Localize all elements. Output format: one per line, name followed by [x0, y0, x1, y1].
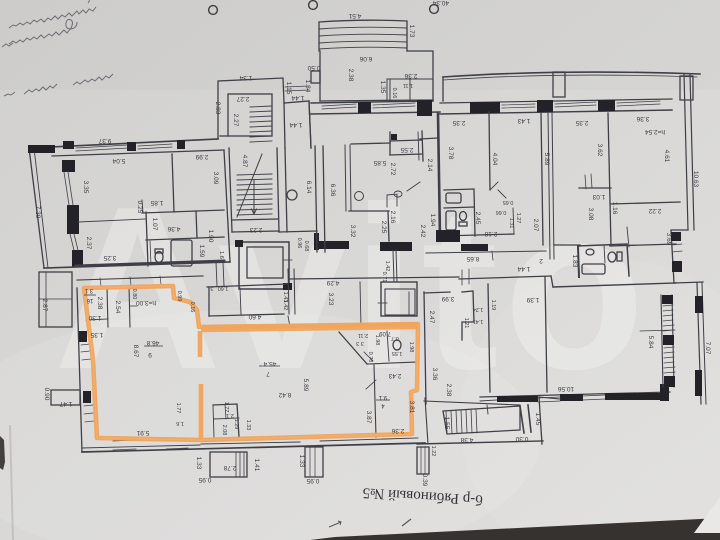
svg-text:4.36: 4.36	[167, 225, 180, 232]
svg-text:2.42: 2.42	[419, 225, 426, 238]
svg-text:8.65: 8.65	[466, 255, 479, 262]
svg-text:2.87: 2.87	[41, 299, 48, 312]
svg-text:0.7: 0.7	[391, 335, 399, 341]
svg-text:2.08: 2.08	[221, 425, 227, 436]
svg-text:8.42: 8.42	[278, 391, 291, 398]
svg-text:46.8: 46.8	[146, 339, 159, 346]
svg-text:3.36: 3.36	[431, 368, 438, 381]
svg-text:1.43: 1.43	[517, 117, 530, 124]
svg-text:1.34: 1.34	[239, 74, 252, 81]
svg-text:1.90: 1.90	[207, 230, 214, 243]
svg-text:40.34: 40.34	[432, 0, 449, 6]
svg-text:0.95: 0.95	[306, 477, 319, 484]
svg-text:1.22: 1.22	[430, 446, 436, 457]
svg-text:2.25: 2.25	[380, 221, 387, 234]
svg-text:1.83: 1.83	[571, 255, 578, 268]
svg-text:1.03: 1.03	[592, 193, 605, 200]
svg-text:0.66: 0.66	[496, 209, 507, 215]
svg-text:2.72: 2.72	[389, 163, 396, 176]
svg-text:1.41: 1.41	[253, 459, 260, 472]
svg-text:1.6: 1.6	[218, 251, 224, 259]
svg-text:2.27: 2.27	[232, 114, 239, 127]
svg-text:16: 16	[86, 297, 93, 303]
svg-text:7.07: 7.07	[704, 342, 711, 355]
svg-text:4.51: 4.51	[348, 12, 361, 19]
svg-text:3.25: 3.25	[103, 254, 116, 261]
svg-text:1.07: 1.07	[151, 218, 158, 231]
svg-text:1.35: 1.35	[379, 81, 386, 94]
svg-text:1.16: 1.16	[611, 202, 618, 215]
svg-text:1.47: 1.47	[59, 400, 72, 407]
svg-text:0.30: 0.30	[515, 435, 528, 442]
svg-text:5.85: 5.85	[373, 159, 386, 166]
svg-text:3.87: 3.87	[365, 411, 372, 424]
svg-text:3.62: 3.62	[596, 144, 603, 157]
svg-text:0.99: 0.99	[176, 291, 182, 302]
svg-text:3.23: 3.23	[327, 293, 334, 306]
svg-text:8.67: 8.67	[132, 345, 139, 358]
svg-text:h=2.54: h=2.54	[645, 128, 665, 135]
svg-text:6.14: 6.14	[305, 181, 312, 194]
svg-text:3.78: 3.78	[447, 147, 454, 160]
svg-text:7.30: 7.30	[34, 206, 41, 219]
svg-text:0.16: 0.16	[189, 302, 195, 313]
svg-text:2.16: 2.16	[389, 211, 396, 224]
svg-text:3.32: 3.32	[349, 225, 356, 238]
svg-text:0.96: 0.96	[296, 238, 302, 249]
svg-text:3 3: 3 3	[356, 340, 364, 346]
svg-text:1.44: 1.44	[517, 265, 530, 272]
svg-text:1.35: 1.35	[90, 331, 103, 338]
svg-text:1.27: 1.27	[515, 213, 521, 224]
svg-text:1.55: 1.55	[392, 350, 403, 356]
svg-text:2.1: 2.1	[226, 412, 234, 418]
svg-text:5.84: 5.84	[647, 336, 654, 349]
svg-text:0.25: 0.25	[136, 201, 143, 214]
svg-text:2.23: 2.23	[249, 226, 262, 233]
svg-text:3: 3	[210, 285, 213, 291]
svg-text:5.04: 5.04	[112, 157, 125, 164]
svg-text:2.47: 2.47	[428, 311, 435, 324]
svg-text:2.37: 2.37	[85, 237, 92, 250]
svg-text:4.60: 4.60	[248, 313, 261, 320]
svg-text:0.90: 0.90	[43, 388, 50, 401]
svg-text:2.35: 2.35	[575, 119, 588, 126]
svg-text:3.81: 3.81	[408, 401, 415, 414]
svg-text:1.21: 1.21	[463, 318, 469, 329]
svg-text:1.42: 1.42	[384, 261, 390, 272]
svg-text:2.38: 2.38	[347, 69, 354, 82]
svg-text:2.43: 2.43	[388, 372, 401, 379]
svg-text:1.34: 1.34	[304, 80, 311, 93]
svg-text:1.15: 1.15	[285, 82, 292, 95]
svg-text:1.59: 1.59	[198, 245, 205, 258]
svg-text:4.38: 4.38	[460, 436, 473, 443]
svg-text:6.06: 6.06	[359, 55, 372, 62]
svg-text:0.39: 0.39	[421, 474, 428, 487]
svg-text:9.1: 9.1	[378, 394, 387, 400]
svg-text:6.36: 6.36	[329, 184, 336, 197]
svg-text:2.38: 2.38	[96, 297, 103, 310]
svg-text:2.27: 2.27	[236, 95, 249, 102]
svg-text:1.44: 1.44	[289, 121, 302, 128]
svg-text:2.36: 2.36	[404, 72, 417, 79]
svg-text:2.83: 2.83	[214, 102, 221, 115]
svg-text:4.04: 4.04	[491, 153, 498, 166]
svg-text:0.50: 0.50	[307, 64, 320, 71]
svg-text:2: 2	[539, 257, 543, 264]
svg-text:0.95: 0.95	[198, 476, 211, 483]
svg-text:1.33: 1.33	[298, 455, 305, 468]
svg-text:3.36: 3.36	[636, 115, 649, 122]
svg-text:4.87: 4.87	[241, 155, 248, 168]
svg-text:5.89: 5.89	[543, 153, 550, 166]
svg-text:5.91: 5.91	[136, 429, 149, 436]
svg-text:1.60: 1.60	[218, 285, 229, 291]
svg-text:1.94: 1.94	[429, 214, 436, 227]
svg-text:0.65: 0.65	[503, 199, 514, 205]
svg-text:1.29: 1.29	[233, 419, 239, 430]
svg-text:2.78: 2.78	[223, 464, 236, 471]
svg-text:0.16: 0.16	[391, 88, 397, 99]
svg-text:1.44: 1.44	[291, 94, 304, 101]
svg-text:2.38: 2.38	[445, 384, 452, 397]
svg-text:10.63: 10.63	[692, 171, 699, 188]
svg-text:3.99: 3.99	[441, 295, 454, 302]
svg-text:3 1: 3 1	[84, 287, 93, 293]
svg-text:2.35: 2.35	[452, 119, 465, 126]
svg-text:1.45: 1.45	[534, 413, 541, 426]
svg-text:0.80: 0.80	[131, 289, 137, 300]
svg-text:1.55: 1.55	[443, 417, 450, 430]
svg-text:2.45: 2.45	[474, 212, 481, 225]
svg-text:1.39: 1.39	[526, 296, 539, 303]
svg-text:7: 7	[266, 370, 270, 377]
svg-text:9: 9	[148, 351, 152, 358]
svg-text:3.08: 3.08	[587, 208, 594, 221]
svg-text:2.99: 2.99	[195, 153, 208, 160]
svg-text:1.42: 1.42	[282, 300, 288, 311]
svg-text:1.30: 1.30	[88, 314, 101, 321]
svg-text:1.98: 1.98	[408, 342, 414, 353]
svg-text:1.31: 1.31	[508, 218, 514, 229]
svg-text:3.09: 3.09	[212, 172, 219, 185]
svg-text:0.68: 0.68	[303, 241, 309, 252]
svg-text:3.35: 3.35	[82, 181, 89, 194]
svg-text:2.22: 2.22	[648, 207, 661, 214]
svg-text:1.77: 1.77	[175, 403, 181, 414]
svg-text:0.78: 0.78	[367, 352, 373, 363]
svg-text:1.98: 1.98	[374, 335, 380, 346]
svg-text:2.07: 2.07	[532, 219, 539, 232]
svg-text:1.33: 1.33	[245, 420, 251, 431]
svg-text:2.18: 2.18	[484, 230, 497, 237]
svg-text:4.29: 4.29	[326, 279, 339, 286]
svg-text:1.33: 1.33	[195, 457, 202, 470]
svg-text:1.24: 1.24	[473, 306, 484, 312]
svg-text:1.77: 1.77	[223, 402, 229, 413]
svg-text:4.61: 4.61	[663, 150, 670, 163]
svg-text:10.56: 10.56	[557, 385, 574, 392]
svg-text:0.71: 0.71	[381, 272, 387, 283]
svg-text:5.89: 5.89	[302, 379, 309, 392]
svg-text:2.55: 2.55	[400, 146, 413, 153]
svg-text:1.85: 1.85	[150, 199, 163, 206]
svg-text:1.6: 1.6	[176, 420, 184, 426]
svg-text:2.36: 2.36	[391, 427, 404, 434]
svg-text:1.11: 1.11	[403, 82, 413, 88]
svg-text:2.14: 2.14	[426, 159, 433, 172]
svg-text:9.37: 9.37	[98, 137, 111, 144]
svg-text:3.69: 3.69	[665, 233, 672, 246]
svg-text:1.73: 1.73	[408, 25, 415, 38]
svg-text:2.11: 2.11	[358, 332, 368, 338]
svg-text:1.41: 1.41	[473, 318, 484, 324]
svg-text:h=3.00: h=3.00	[136, 299, 156, 306]
svg-text:2.54: 2.54	[114, 301, 121, 314]
svg-text:1.19: 1.19	[490, 300, 496, 311]
